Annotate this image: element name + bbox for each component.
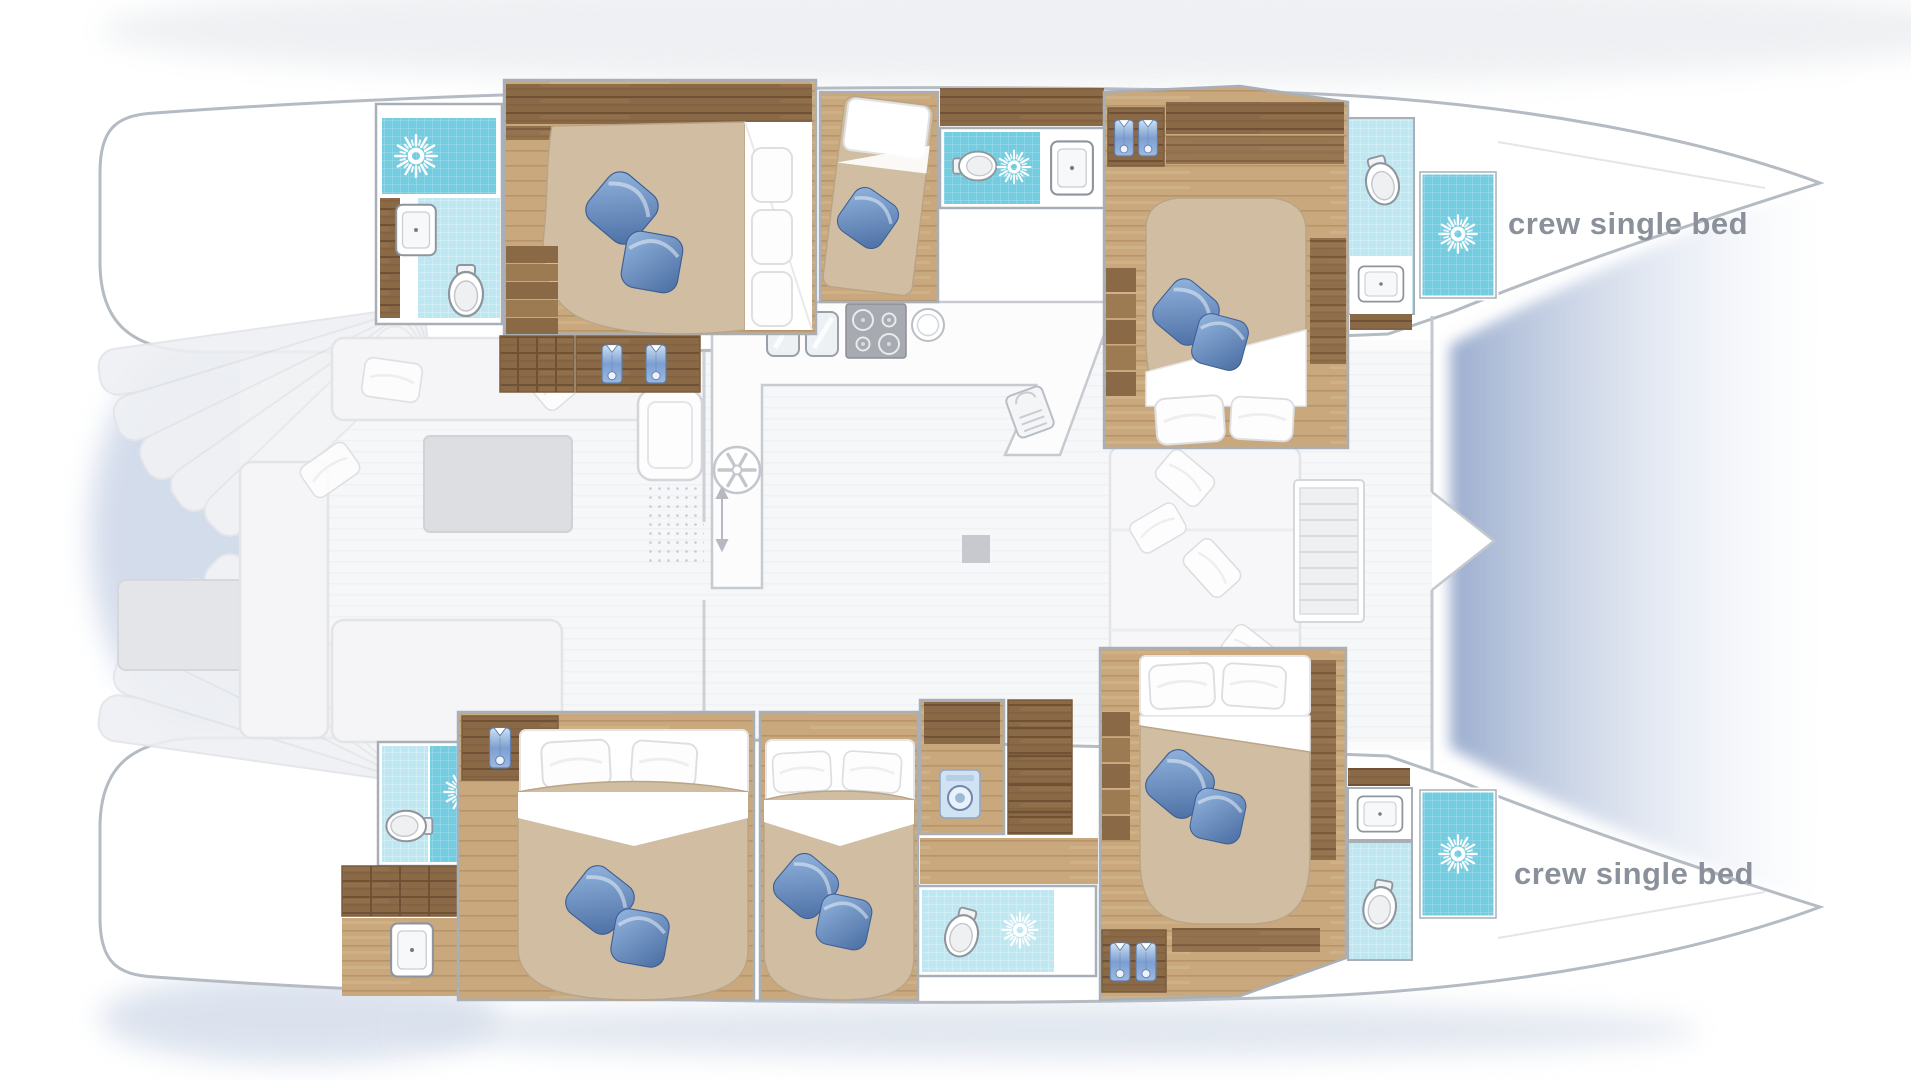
cabin-stairs [1102,712,1130,840]
companionway-stbd [342,866,462,996]
bathroom-stbd-mid [918,886,1096,976]
cabin-stbd-aft [458,712,754,1000]
sink-basin-icon [391,923,433,976]
cabin-port-aft [504,80,816,334]
cockpit-table [118,580,258,670]
white-pillow-icon [1149,662,1216,709]
sink-basin-icon [1359,266,1404,301]
hanging-shirt-icon [1110,943,1130,981]
bathroom-port-aft [376,104,502,324]
floorplan-drawing [0,0,1911,1080]
headboard-shelf [506,84,812,124]
shower-stall [1420,790,1496,918]
shelf-band [1172,928,1320,952]
utility-room [920,700,1004,834]
sink-basin-icon [1358,796,1403,831]
four-burner-stove-icon [846,304,906,358]
white-pillow-icon [361,357,424,404]
cockpit-side-bench [240,462,328,738]
white-pillow-icon [1154,395,1225,446]
wardrobe [576,336,700,392]
hanging-shirt-icon [602,345,622,383]
white-pillow-icon [1221,663,1286,710]
white-pillow-icon [772,751,832,793]
hanging-shirt-icon [1139,120,1158,156]
cabin-stairs [506,246,558,334]
bathroom-tile-floor [382,746,428,862]
floor-hatch-grid [648,487,704,567]
wood-sill [1348,768,1410,786]
white-pillow-icon [1230,396,1295,442]
table-base [962,535,990,563]
blue-pillow-icon [814,892,874,952]
sink-basin-icon [1051,141,1093,194]
hanging-shirt-icon [490,728,511,768]
white-pillow-icon [541,739,611,788]
hanging-shirt-icon [1136,943,1156,981]
blue-pillow-icon [609,907,672,970]
bolster-pillows [752,148,792,326]
corridor-floor [920,838,1098,884]
vent-fan-icon [714,447,760,493]
hanging-shirt-icon [646,345,666,383]
trampoline-shadow [1450,190,1832,900]
stairs-stbd-fwd [1008,700,1072,834]
hanging-shirt-icon [1115,120,1134,156]
cabin-stbd-mid [760,712,918,1000]
washing-machine-icon [940,770,980,818]
cockpit-dining-table [424,436,572,532]
sink-basin-icon [396,205,436,255]
cabin-port-fwd [1104,86,1348,448]
shower-stall [1420,172,1496,298]
blue-pillow-icon [1188,786,1248,846]
side-steps [1310,238,1346,364]
bathroom-port-fwd [940,128,1106,208]
crew-single-bed-label-starboard: crew single bed [1514,856,1754,892]
companionway-port [500,336,700,392]
cabin-stbd-fwd [1100,648,1346,1000]
cabin-port-mid [820,92,938,302]
shelf-band [1166,102,1344,134]
shelf-over-bathroom [940,88,1104,126]
blue-pillow-icon [619,229,685,295]
crew-single-bed-label-port: crew single bed [1508,206,1748,242]
wood-band [924,702,1000,744]
white-pillow-icon [842,750,902,793]
catamaran-floorplan: crew single bed crew single bed [0,0,1911,1080]
shelf-band [1166,136,1344,164]
wood-sill [1350,314,1412,330]
cabin-stairs [1106,268,1136,396]
